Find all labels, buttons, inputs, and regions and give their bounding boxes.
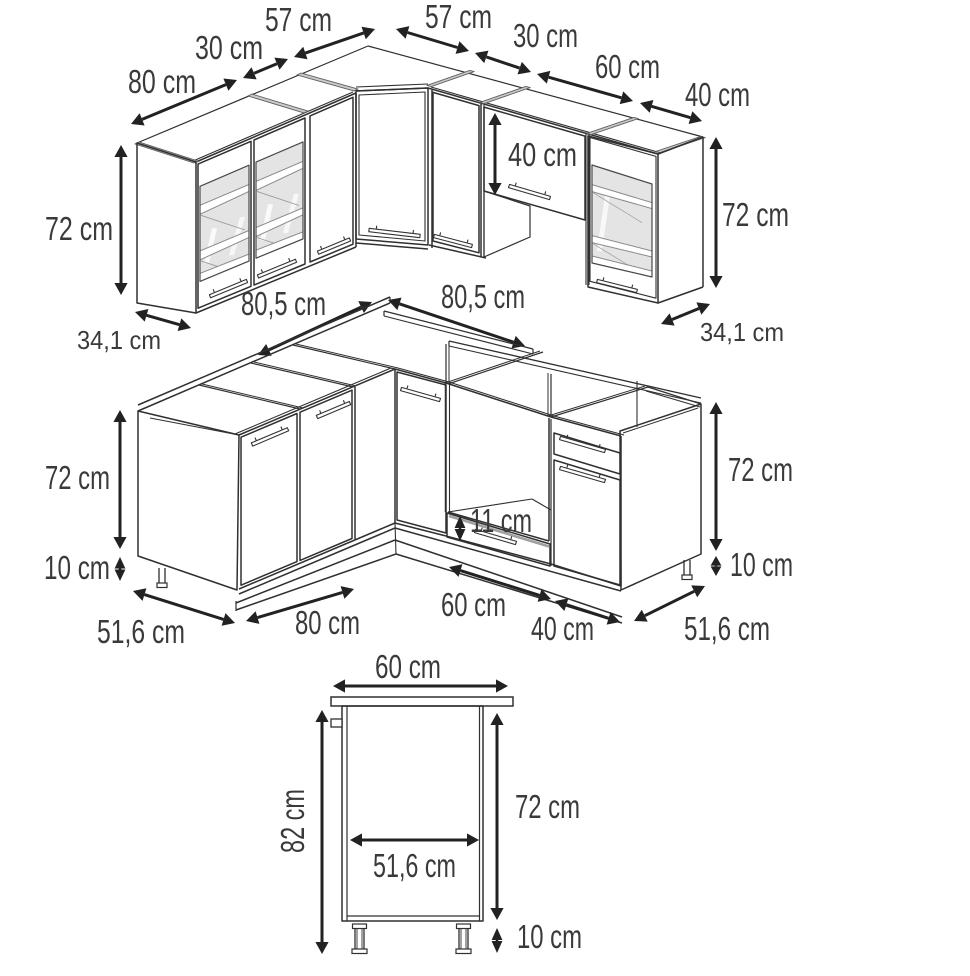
svg-text:60 cm: 60 cm [595, 48, 660, 85]
svg-text:51,6 cm: 51,6 cm [684, 610, 770, 647]
svg-text:57 cm: 57 cm [265, 1, 332, 38]
svg-text:57 cm: 57 cm [425, 0, 492, 35]
svg-text:72 cm: 72 cm [45, 210, 113, 247]
svg-text:60 cm: 60 cm [441, 586, 506, 623]
svg-text:51,6 cm: 51,6 cm [373, 847, 456, 884]
svg-text:72 cm: 72 cm [728, 451, 793, 488]
svg-text:30 cm: 30 cm [513, 17, 578, 54]
svg-text:10 cm: 10 cm [517, 918, 582, 955]
svg-text:40 cm: 40 cm [685, 76, 750, 113]
svg-text:40 cm: 40 cm [531, 610, 594, 647]
svg-text:80,5 cm: 80,5 cm [441, 278, 525, 315]
svg-text:82 cm: 82 cm [274, 789, 311, 853]
svg-text:10 cm: 10 cm [730, 546, 793, 583]
svg-text:40 cm: 40 cm [508, 136, 577, 173]
svg-text:72 cm: 72 cm [515, 788, 580, 825]
svg-text:11 cm: 11 cm [470, 502, 532, 539]
svg-text:60 cm: 60 cm [375, 648, 441, 685]
svg-text:80 cm: 80 cm [128, 63, 196, 100]
svg-text:72 cm: 72 cm [45, 459, 110, 496]
svg-text:72 cm: 72 cm [722, 196, 789, 233]
svg-text:80 cm: 80 cm [295, 604, 360, 641]
svg-text:80,5 cm: 80,5 cm [241, 285, 326, 322]
svg-text:30 cm: 30 cm [195, 29, 263, 66]
svg-text:34,1 cm: 34,1 cm [77, 325, 161, 355]
svg-text:34,1 cm: 34,1 cm [700, 317, 784, 347]
svg-text:10 cm: 10 cm [44, 549, 110, 586]
svg-text:51,6 cm: 51,6 cm [97, 613, 185, 650]
